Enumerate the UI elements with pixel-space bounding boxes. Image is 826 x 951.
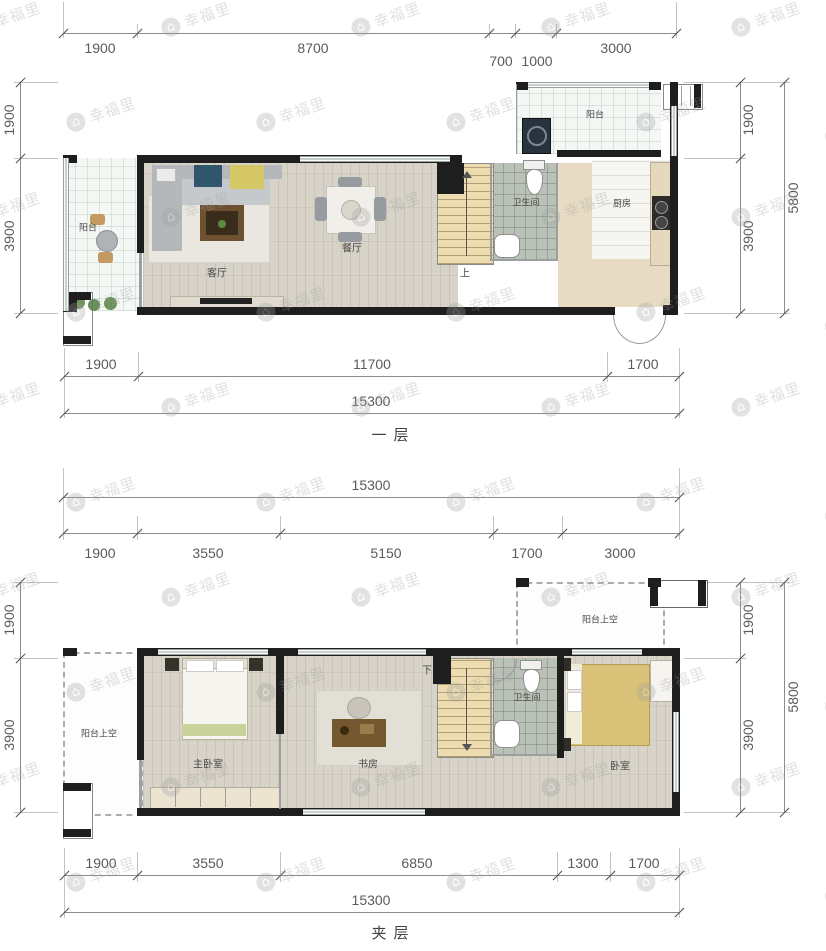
wardrobe-divider: [175, 787, 176, 807]
partition: [490, 259, 558, 261]
watermark: ⌂幸福里: [64, 92, 139, 135]
sofa-pillow: [156, 168, 176, 182]
dimension-line: [63, 33, 676, 34]
dim-label: 3900: [1, 220, 17, 251]
watermark: ⌂幸福里: [349, 0, 424, 40]
watermark-house-icon: ⌂: [64, 110, 88, 134]
wall-corner: [63, 783, 91, 791]
watermark-text: 幸福里: [561, 0, 613, 32]
wall-corner: [650, 580, 658, 606]
extension-line: [610, 852, 611, 882]
extension-line: [684, 812, 790, 813]
wall-balcony-divider: [137, 155, 144, 253]
watermark-text: 幸福里: [656, 852, 708, 887]
dim-label: 1900: [84, 545, 115, 561]
wall-corner: [694, 84, 701, 108]
balcony-table: [96, 230, 118, 252]
window: [303, 809, 425, 815]
watermark-text: 幸福里: [0, 567, 43, 602]
wall-balcony-kitchen: [557, 150, 661, 157]
tv: [200, 298, 252, 304]
room-label-dining: 餐厅: [342, 240, 362, 255]
watermark: ⌂幸福里: [0, 377, 43, 420]
watermark-text: 幸福里: [0, 0, 43, 32]
room-label-bath: 卫生间: [512, 196, 539, 209]
dim-label: 5800: [785, 182, 801, 213]
room-label-study: 书房: [358, 756, 378, 771]
watermark-house-icon: ⌂: [349, 15, 373, 39]
window: [158, 649, 268, 655]
extension-line: [493, 516, 494, 540]
room-label-kitchen: 厨房: [613, 197, 631, 210]
extension-line: [557, 852, 558, 882]
watermark: ⌂幸福里: [816, 858, 826, 931]
dim-label: 11700: [353, 356, 391, 372]
wall-corner: [516, 82, 528, 90]
watermark-house-icon: ⌂: [159, 395, 183, 419]
watermark-text: 幸福里: [181, 0, 233, 32]
wall-corner: [649, 82, 661, 90]
pillow: [186, 660, 214, 672]
dimension-line: [64, 413, 679, 414]
table-plant: [218, 220, 226, 228]
room-label-balcony: 阳台: [79, 221, 97, 234]
partition: [556, 163, 558, 261]
dining-chair: [338, 177, 362, 187]
dim-label: 1900: [85, 356, 116, 372]
entry-hall-floor: [558, 259, 672, 307]
dim-label: 3550: [192, 545, 223, 561]
stair-arrow-head: [462, 171, 472, 178]
nightstand: [165, 658, 179, 671]
watermark-text: 幸福里: [751, 567, 803, 602]
window: [671, 106, 677, 156]
dining-centerpiece: [341, 200, 361, 220]
stair-wall: [437, 163, 464, 194]
dining-chair: [315, 197, 327, 221]
window: [300, 156, 450, 162]
watermark-house-icon: ⌂: [444, 490, 468, 514]
pillow: [567, 670, 582, 690]
watermark-house-icon: ⌂: [349, 585, 373, 609]
stair-arrow-head: [462, 744, 472, 751]
watermark-text: 幸福里: [0, 757, 43, 792]
watermark-text: 幸福里: [276, 472, 328, 507]
tall-cabinet: [558, 163, 592, 259]
watermark-text: 幸福里: [656, 472, 708, 507]
dim-label: 3900: [1, 719, 17, 750]
watermark-text: 幸福里: [751, 377, 803, 412]
floor-plan-sheet: 1900 8700 700 1000 3000 1900 3900 1900 3…: [0, 0, 826, 951]
window: [298, 649, 426, 655]
room-label-balcony-void: 阳台上空: [81, 727, 117, 740]
window: [63, 158, 69, 311]
dimension-line: [64, 912, 679, 913]
dimension-line: [20, 582, 21, 812]
dim-label: 5150: [370, 545, 401, 561]
watermark: ⌂幸福里: [539, 0, 614, 40]
wardrobe-divider: [250, 787, 251, 807]
room-label-balcony-void-top: 阳台上空: [582, 613, 618, 626]
extension-line: [137, 516, 138, 540]
nightstand: [249, 658, 263, 671]
plan-title-mezzanine: 夹层: [364, 922, 415, 943]
wall-master-study: [276, 650, 284, 734]
dim-label: 15300: [352, 892, 391, 908]
watermark-text: 幸福里: [86, 92, 138, 127]
dimension-line: [63, 533, 679, 534]
stair-wall: [433, 650, 451, 684]
watermark: ⌂幸福里: [729, 0, 804, 40]
room-label-balcony-top: 阳台: [586, 108, 604, 121]
watermark-text: 幸福里: [751, 757, 803, 792]
watermark: ⌂幸福里: [816, 478, 826, 551]
watermark: ⌂幸福里: [0, 757, 43, 800]
watermark-house-icon: ⌂: [634, 490, 658, 514]
dining-chair: [374, 197, 386, 221]
balcony-edge: [516, 84, 517, 154]
watermark-house-icon: ⌂: [634, 870, 658, 894]
watermark: ⌂幸福里: [159, 0, 234, 40]
pillow: [216, 660, 244, 672]
watermark-house-icon: ⌂: [729, 395, 753, 419]
dim-label: 1900: [740, 604, 756, 635]
entry-door-leaf: [639, 315, 666, 344]
sliding-door: [139, 760, 142, 810]
watermark-text: 幸福里: [751, 0, 803, 32]
wardrobe: [150, 787, 280, 809]
dim-label: 6850: [401, 855, 432, 871]
wall-corner: [63, 648, 77, 656]
dim-label: 1900: [84, 40, 115, 56]
dim-label: 5800: [785, 681, 801, 712]
sofa-cushion-yellow: [230, 165, 264, 189]
plan-title-first: 一层: [364, 424, 415, 445]
desk-item: [360, 724, 374, 734]
watermark-text: 幸福里: [466, 852, 518, 887]
wall-bottom: [137, 307, 615, 315]
extension-line: [684, 82, 790, 83]
extension-line: [679, 468, 680, 540]
dim-label: 1900: [1, 104, 17, 135]
wall-corner: [63, 336, 91, 344]
watermark: ⌂幸福里: [254, 472, 329, 515]
extension-line: [684, 313, 790, 314]
dimension-line: [63, 497, 679, 498]
wall-corner: [63, 829, 91, 837]
watermark: ⌂幸福里: [444, 472, 519, 515]
watermark: ⌂幸福里: [816, 668, 826, 741]
watermark-text: 幸福里: [466, 92, 518, 127]
watermark-text: 幸福里: [561, 377, 613, 412]
dim-label: 1900: [1, 604, 17, 635]
burner: [655, 201, 668, 214]
dimension-line: [64, 875, 679, 876]
room-label-master: 主卧室: [193, 756, 223, 771]
watermark-text: 幸福里: [371, 0, 423, 32]
watermark-house-icon: ⌂: [254, 490, 278, 514]
watermark-text: 幸福里: [181, 377, 233, 412]
dim-label: 1700: [627, 356, 658, 372]
washbasin: [494, 720, 520, 748]
watermark: ⌂幸福里: [349, 567, 424, 610]
wall-corner: [516, 578, 529, 587]
watermark-house-icon: ⌂: [729, 15, 753, 39]
watermark-text: 幸福里: [0, 187, 43, 222]
window: [673, 712, 679, 792]
extension-line: [684, 158, 746, 159]
partition: [490, 754, 558, 756]
extension-line: [280, 852, 281, 882]
watermark: ⌂幸福里: [816, 288, 826, 361]
dim-label: 1700: [511, 545, 542, 561]
extension-line: [562, 516, 563, 540]
burner: [655, 216, 668, 229]
wardrobe-divider: [200, 787, 201, 807]
watermark-text: 幸福里: [0, 377, 43, 412]
watermark-house-icon: ⌂: [254, 110, 278, 134]
stair-label-down: 下: [422, 662, 432, 677]
watermark-text: 幸福里: [466, 472, 518, 507]
watermark: ⌂幸福里: [254, 852, 329, 895]
watermark-house-icon: ⌂: [64, 870, 88, 894]
dim-label: 1000: [521, 53, 552, 69]
sofa-cushion-blue: [194, 165, 222, 187]
extension-line: [64, 848, 65, 918]
extension-line: [64, 348, 65, 418]
dim-label: 3000: [604, 545, 635, 561]
entry-door-leaf: [613, 315, 640, 344]
balcony-chair: [98, 252, 113, 263]
ac-louver: [690, 86, 691, 106]
dim-label: 1900: [85, 855, 116, 871]
wall-bath-bedroom: [557, 650, 564, 758]
watermark-text: 幸福里: [276, 92, 328, 127]
watermark: ⌂幸福里: [159, 567, 234, 610]
watermark-house-icon: ⌂: [444, 870, 468, 894]
watermark-house-icon: ⌂: [159, 585, 183, 609]
dim-label: 1900: [740, 104, 756, 135]
dim-label: 3000: [600, 40, 631, 56]
desk-item: [340, 726, 349, 735]
watermark-text: 幸福里: [181, 567, 233, 602]
watermark: ⌂幸福里: [0, 0, 43, 40]
watermark-house-icon: ⌂: [539, 15, 563, 39]
dim-label: 8700: [297, 40, 328, 56]
watermark-text: 幸福里: [86, 472, 138, 507]
extension-line: [684, 658, 746, 659]
extension-line: [137, 852, 138, 882]
watermark: ⌂幸福里: [729, 377, 804, 420]
partition: [279, 734, 281, 809]
wardrobe-divider: [225, 787, 226, 807]
watermark-house-icon: ⌂: [444, 110, 468, 134]
watermark: ⌂幸福里: [444, 92, 519, 135]
washer-drum: [527, 126, 547, 146]
dim-label: 700: [489, 53, 512, 69]
watermark: ⌂幸福里: [816, 98, 826, 171]
wall-corner: [698, 580, 706, 606]
desk-chair: [347, 697, 371, 719]
watermark-house-icon: ⌂: [254, 870, 278, 894]
extension-line: [280, 516, 281, 540]
room-label-bath-2: 卫生间: [513, 691, 540, 704]
dim-label: 15300: [352, 477, 391, 493]
watermark-house-icon: ⌂: [159, 15, 183, 39]
dimension-line: [20, 82, 21, 313]
window: [528, 82, 649, 88]
room-label-bedroom: 卧室: [610, 758, 630, 773]
watermark: ⌂幸福里: [64, 472, 139, 515]
plant: [104, 297, 117, 310]
watermark-house-icon: ⌂: [539, 395, 563, 419]
extension-line: [679, 848, 680, 918]
bed-throw: [182, 724, 246, 736]
dim-label: 3550: [192, 855, 223, 871]
room-label-living: 客厅: [207, 265, 227, 280]
wall-corner: [663, 305, 678, 315]
watermark: ⌂幸福里: [254, 92, 329, 135]
ac-louver: [681, 86, 682, 106]
plant: [88, 299, 100, 311]
wall-left: [137, 648, 144, 760]
dim-label: 1700: [628, 855, 659, 871]
stair-arrow-line: [466, 178, 467, 256]
dim-label: 3900: [740, 719, 756, 750]
watermark: ⌂幸福里: [634, 472, 709, 515]
stair-label-up: 上: [460, 265, 470, 280]
dimension-line: [64, 376, 679, 377]
extension-line: [679, 348, 680, 418]
dim-label: 1300: [567, 855, 598, 871]
watermark-text: 幸福里: [371, 567, 423, 602]
watermark: ⌂幸福里: [444, 852, 519, 895]
stair-arrow-line: [466, 668, 467, 746]
window: [572, 649, 642, 655]
washbasin: [494, 234, 520, 258]
partition: [490, 163, 492, 261]
pillow: [567, 692, 582, 712]
partition: [490, 658, 492, 756]
dim-label: 3900: [740, 220, 756, 251]
sliding-door: [139, 253, 142, 310]
dim-label: 15300: [352, 393, 391, 409]
extension-line: [63, 468, 64, 540]
